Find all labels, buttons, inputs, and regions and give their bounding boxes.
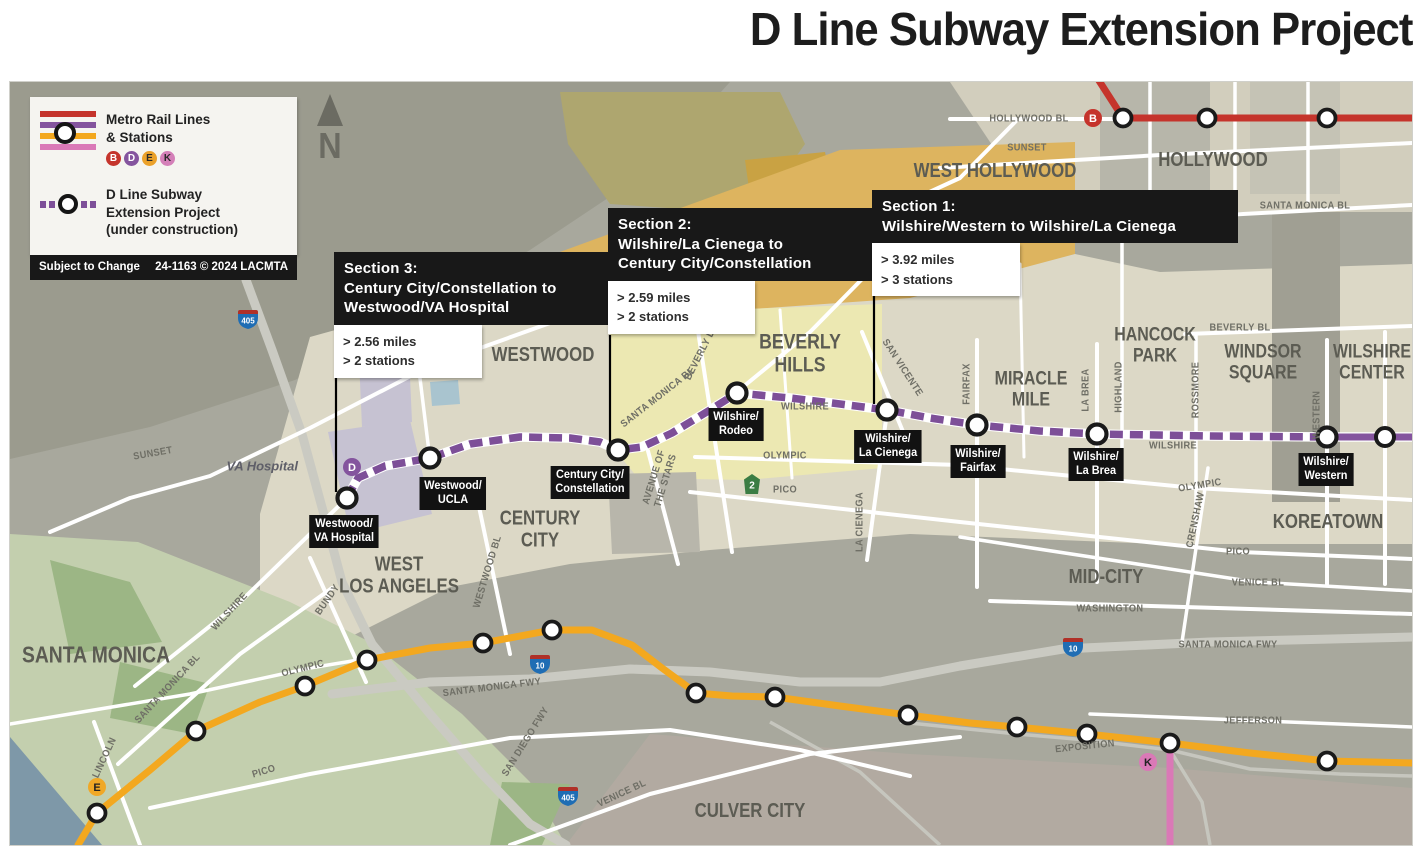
d-extension-station-marker — [1318, 428, 1337, 447]
e-line-station-marker — [767, 689, 784, 706]
map-area-culver-city — [566, 734, 1412, 845]
interstate-shield-icon: 10 — [1063, 638, 1083, 657]
dash-swatch — [40, 201, 46, 208]
legend-body: Metro Rail Lines & Stations BDEK D Line … — [30, 97, 297, 255]
d-line-badge-letter: D — [348, 462, 356, 474]
d-extension-station-marker — [728, 384, 747, 403]
callout-heading: Section 1: — [882, 197, 1228, 217]
k-line-badge-letter: K — [1144, 757, 1152, 769]
legend-footer: Subject to Change 24-1163 © 2024 LACMTA — [30, 255, 297, 280]
legend-footer-right: 24-1163 © 2024 LACMTA — [155, 261, 288, 273]
street-road — [1090, 714, 1412, 727]
north-arrow-icon — [317, 94, 343, 126]
north-arrow: N — [313, 94, 347, 164]
shield-part: 405 — [561, 794, 575, 803]
b-line-station-marker — [1319, 110, 1336, 127]
legend-rail-label: Metro Rail Lines & Stations — [106, 111, 210, 146]
dash-swatch — [81, 201, 87, 208]
map-area-century-city — [608, 472, 700, 554]
d-extension-station-marker — [878, 401, 897, 420]
b-line-station-marker — [1199, 110, 1216, 127]
legend-extension-label: D Line Subway Extension Project (under c… — [106, 186, 238, 239]
b-line-badge-letter: B — [1089, 113, 1097, 125]
d-extension-station-marker — [421, 449, 440, 468]
north-label: N — [315, 128, 346, 164]
shield-part: 405 — [241, 317, 255, 326]
d-extension-station-marker — [338, 489, 357, 508]
callout-stats: > 2.56 miles > 2 stations — [334, 325, 482, 378]
map-area-pond — [430, 380, 460, 406]
e-line-station-marker — [475, 635, 492, 652]
e-line-station-marker — [359, 652, 376, 669]
e-line-station-marker — [188, 723, 205, 740]
interstate-shield-icon: 10 — [530, 655, 550, 674]
callout-section-2: Section 2: Wilshire/La Cienega to Centur… — [608, 208, 895, 334]
callout-section-1: Section 1: Wilshire/Western to Wilshire/… — [872, 190, 1238, 296]
e-line-station-marker — [1162, 735, 1179, 752]
e-line-badge-letter: E — [93, 782, 100, 794]
page-title: D Line Subway Extension Project — [749, 2, 1412, 56]
shield-part — [238, 310, 258, 314]
dash-swatch — [49, 201, 55, 208]
legend-rail-lines-sample — [40, 111, 96, 155]
shield-part: 10 — [536, 662, 545, 671]
callout-heading: Section 2: — [618, 215, 885, 235]
e-line-station-marker — [1009, 719, 1026, 736]
e-line-station-marker — [688, 685, 705, 702]
d-extension-station-marker — [609, 441, 628, 460]
shield-part: 2 — [749, 481, 755, 492]
shield-part — [530, 655, 550, 659]
b-line-swatch — [40, 111, 96, 117]
dash-swatch — [90, 201, 96, 208]
b-line-badge-icon: B — [106, 151, 121, 166]
d-extension-station-marker — [1088, 425, 1107, 444]
legend-extension-sample — [40, 194, 96, 214]
callout-route: Wilshire/Western to Wilshire/La Cienega — [882, 217, 1228, 237]
street-road — [990, 601, 1412, 614]
shield-part — [558, 787, 578, 791]
e-line-station-marker — [297, 678, 314, 695]
e-line-badge-icon: E — [142, 151, 157, 166]
d-line-station-marker — [1376, 428, 1394, 446]
e-line-station-marker — [544, 622, 561, 639]
e-line-station-marker — [89, 805, 106, 822]
legend-line-badges: BDEK — [106, 151, 210, 166]
d-line-badge-icon: D — [124, 151, 139, 166]
k-line-badge-icon: K — [160, 151, 175, 166]
e-line-station-marker — [1319, 753, 1336, 770]
legend: Metro Rail Lines & Stations BDEK D Line … — [30, 97, 297, 280]
e-line-station-marker — [900, 707, 917, 724]
map-canvas: BDEK40540510102 SANTA MONICAWEST LOS ANG… — [10, 82, 1412, 845]
freeway-road — [332, 637, 1412, 694]
station-sample-icon — [54, 122, 76, 144]
callout-section-3: Section 3: Century City/Constellation to… — [334, 252, 610, 378]
callout-stats: > 2.59 miles > 2 stations — [608, 281, 755, 334]
d-extension-station-marker — [968, 416, 987, 435]
shield-part: 10 — [1069, 645, 1078, 654]
callout-route: Wilshire/La Cienega to Century City/Cons… — [618, 235, 885, 274]
transit-map-poster: D Line Subway Extension Project BDEK4054… — [0, 0, 1420, 862]
e-line-station-marker — [1079, 726, 1096, 743]
map-area-block — [1250, 82, 1340, 194]
callout-heading: Section 3: — [344, 259, 600, 279]
legend-footer-left: Subject to Change — [39, 261, 140, 273]
callout-stats: > 3.92 miles > 3 stations — [872, 243, 1020, 296]
map-area-dark-strip — [1272, 212, 1340, 502]
callout-route: Century City/Constellation to Westwood/V… — [344, 279, 600, 318]
station-sample-icon — [58, 194, 78, 214]
k-line-swatch — [40, 144, 96, 150]
shield-part — [1063, 638, 1083, 642]
b-line-station-marker — [1115, 110, 1132, 127]
map-area-block — [1100, 82, 1210, 200]
